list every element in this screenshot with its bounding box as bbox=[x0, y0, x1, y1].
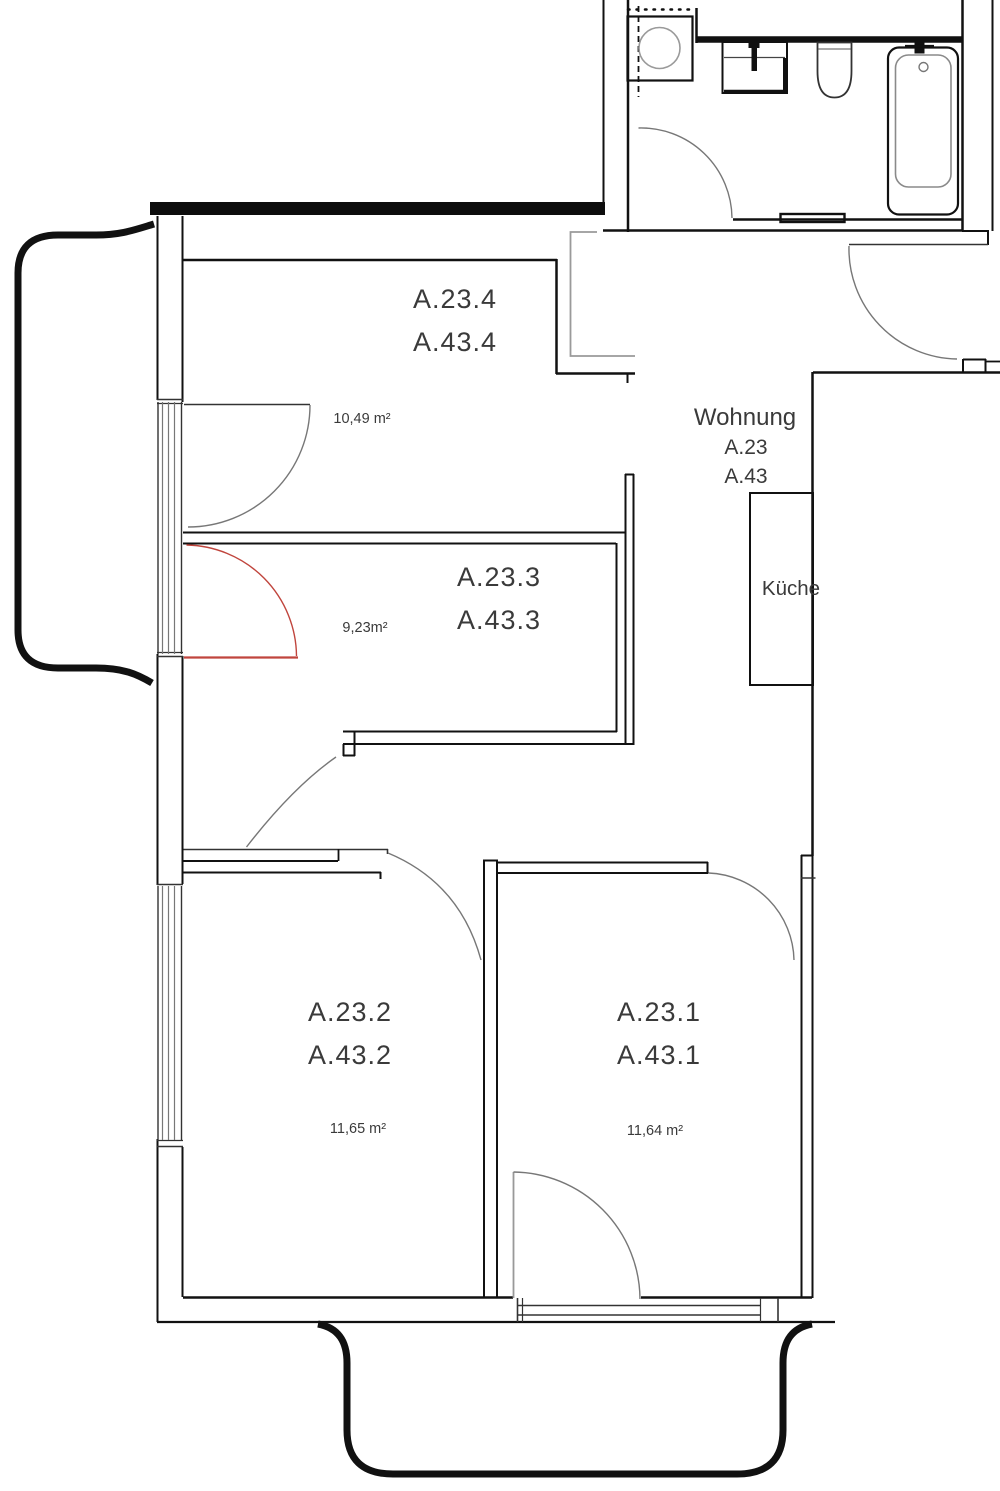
installation-shaft bbox=[571, 232, 636, 356]
room2-label-b: A.43.2 bbox=[308, 1040, 392, 1070]
room3-escape-door bbox=[184, 545, 298, 658]
room4-door bbox=[184, 405, 310, 528]
apartment-title: Wohnung bbox=[694, 404, 796, 431]
labels: A.23.4 A.43.4 10,49 m² A.23.3 A.43.3 9,2… bbox=[308, 284, 820, 1139]
balcony-bottom bbox=[318, 1324, 812, 1474]
bathtub-faucet bbox=[915, 43, 925, 54]
room3-label-b: A.43.3 bbox=[457, 605, 541, 635]
room1-door bbox=[709, 873, 795, 960]
window-lower-left bbox=[157, 885, 183, 1147]
entry-door bbox=[849, 246, 957, 359]
room2-label-a: A.23.2 bbox=[308, 997, 392, 1027]
room2-area: 11,65 m² bbox=[330, 1121, 386, 1137]
bathtub-drain bbox=[919, 63, 928, 72]
room1-area: 11,64 m² bbox=[627, 1123, 683, 1139]
room2-door bbox=[388, 853, 481, 960]
bathroom-door bbox=[639, 128, 845, 222]
room3-area: 9,23m² bbox=[342, 620, 387, 636]
room1-balcony-door bbox=[514, 1172, 641, 1299]
sink bbox=[723, 41, 788, 93]
kitchen-label: Küche bbox=[762, 577, 820, 600]
walls bbox=[150, 0, 1000, 1322]
bathtub bbox=[888, 43, 958, 215]
floor-plan-drawing: A.23.4 A.43.4 10,49 m² A.23.3 A.43.3 9,2… bbox=[0, 0, 1000, 1491]
washing-machine-drum bbox=[639, 28, 680, 69]
apartment-unit-b: A.43 bbox=[724, 465, 767, 488]
room1-label-b: A.43.1 bbox=[617, 1040, 701, 1070]
sink-faucet-stem bbox=[752, 44, 758, 71]
room4-area: 10,49 m² bbox=[333, 411, 390, 427]
balcony-left bbox=[18, 224, 154, 683]
washing-machine bbox=[628, 17, 693, 81]
floor-plan: A.23.4 A.43.4 10,49 m² A.23.3 A.43.3 9,2… bbox=[0, 0, 1000, 1491]
window-bottom bbox=[517, 1298, 778, 1322]
room3-door bbox=[247, 757, 337, 847]
bathroom-door-sill bbox=[781, 214, 845, 222]
room4-label-a: A.23.4 bbox=[413, 284, 497, 314]
room4-label-b: A.43.4 bbox=[413, 327, 497, 357]
toilet bbox=[818, 43, 852, 98]
window-upper-left bbox=[157, 400, 183, 657]
room1-label-a: A.23.1 bbox=[617, 997, 701, 1027]
wall-top-thick bbox=[150, 202, 605, 215]
apartment-unit-a: A.23 bbox=[724, 436, 767, 459]
room3-label-a: A.23.3 bbox=[457, 562, 541, 592]
